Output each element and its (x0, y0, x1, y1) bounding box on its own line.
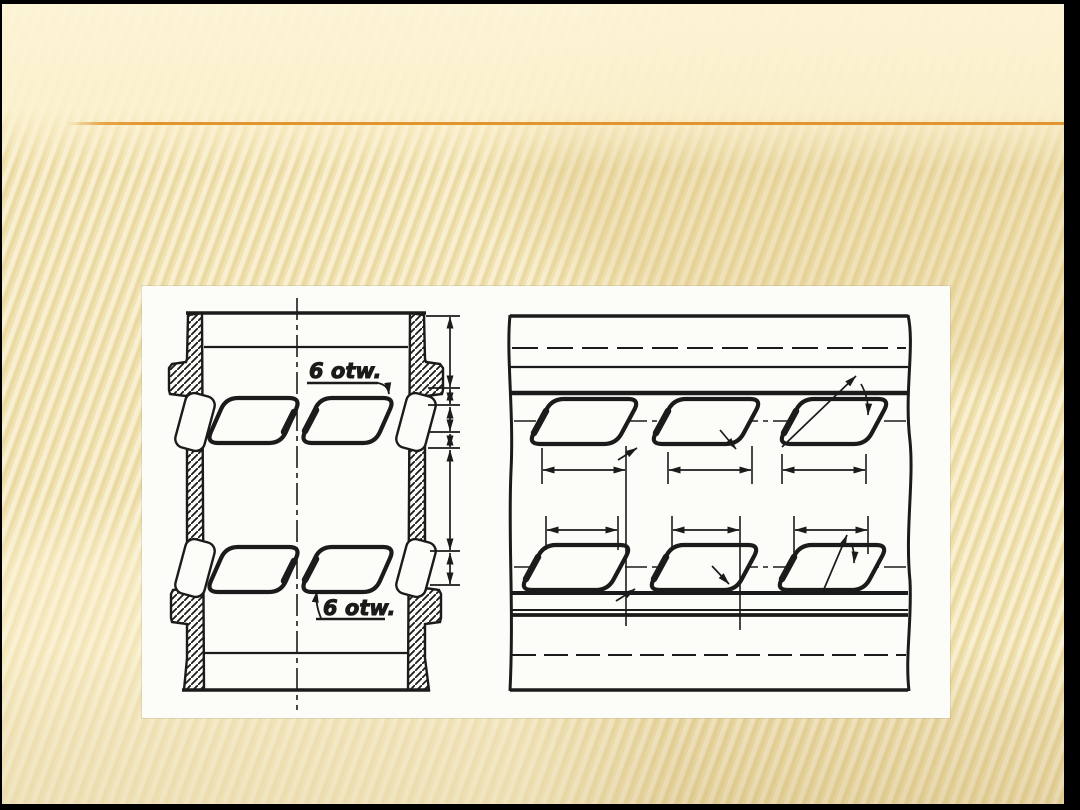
port (209, 547, 297, 592)
port (303, 547, 391, 592)
upper-ring-band (510, 316, 908, 393)
port-count-callout-top: 6 otw. (307, 359, 389, 394)
extension-lines (542, 446, 868, 630)
port (782, 399, 886, 444)
lower-ring-band (510, 593, 908, 690)
figure-panel: 6 otw. 6 otw. (142, 286, 950, 718)
slide: 6 otw. 6 otw. (0, 0, 1080, 810)
break-line-borders (509, 315, 911, 691)
accent-divider-line (66, 122, 1064, 125)
port-count-label-top: 6 otw. (309, 359, 381, 383)
port (532, 399, 636, 444)
developed-ports (524, 399, 886, 590)
port (303, 398, 391, 443)
port (209, 398, 297, 443)
port-count-callout-bottom: 6 otw. (316, 591, 395, 620)
technical-drawing-svg: 6 otw. 6 otw. (142, 286, 950, 718)
left-view-cross-section: 6 otw. 6 otw. (169, 298, 460, 710)
section-walls-hatched (169, 313, 443, 690)
right-view-developed-surface (509, 315, 911, 691)
port-count-label-bottom: 6 otw. (323, 596, 395, 620)
end-faces (182, 313, 430, 690)
section-ports (209, 398, 391, 592)
port (654, 399, 758, 444)
port (524, 545, 628, 590)
